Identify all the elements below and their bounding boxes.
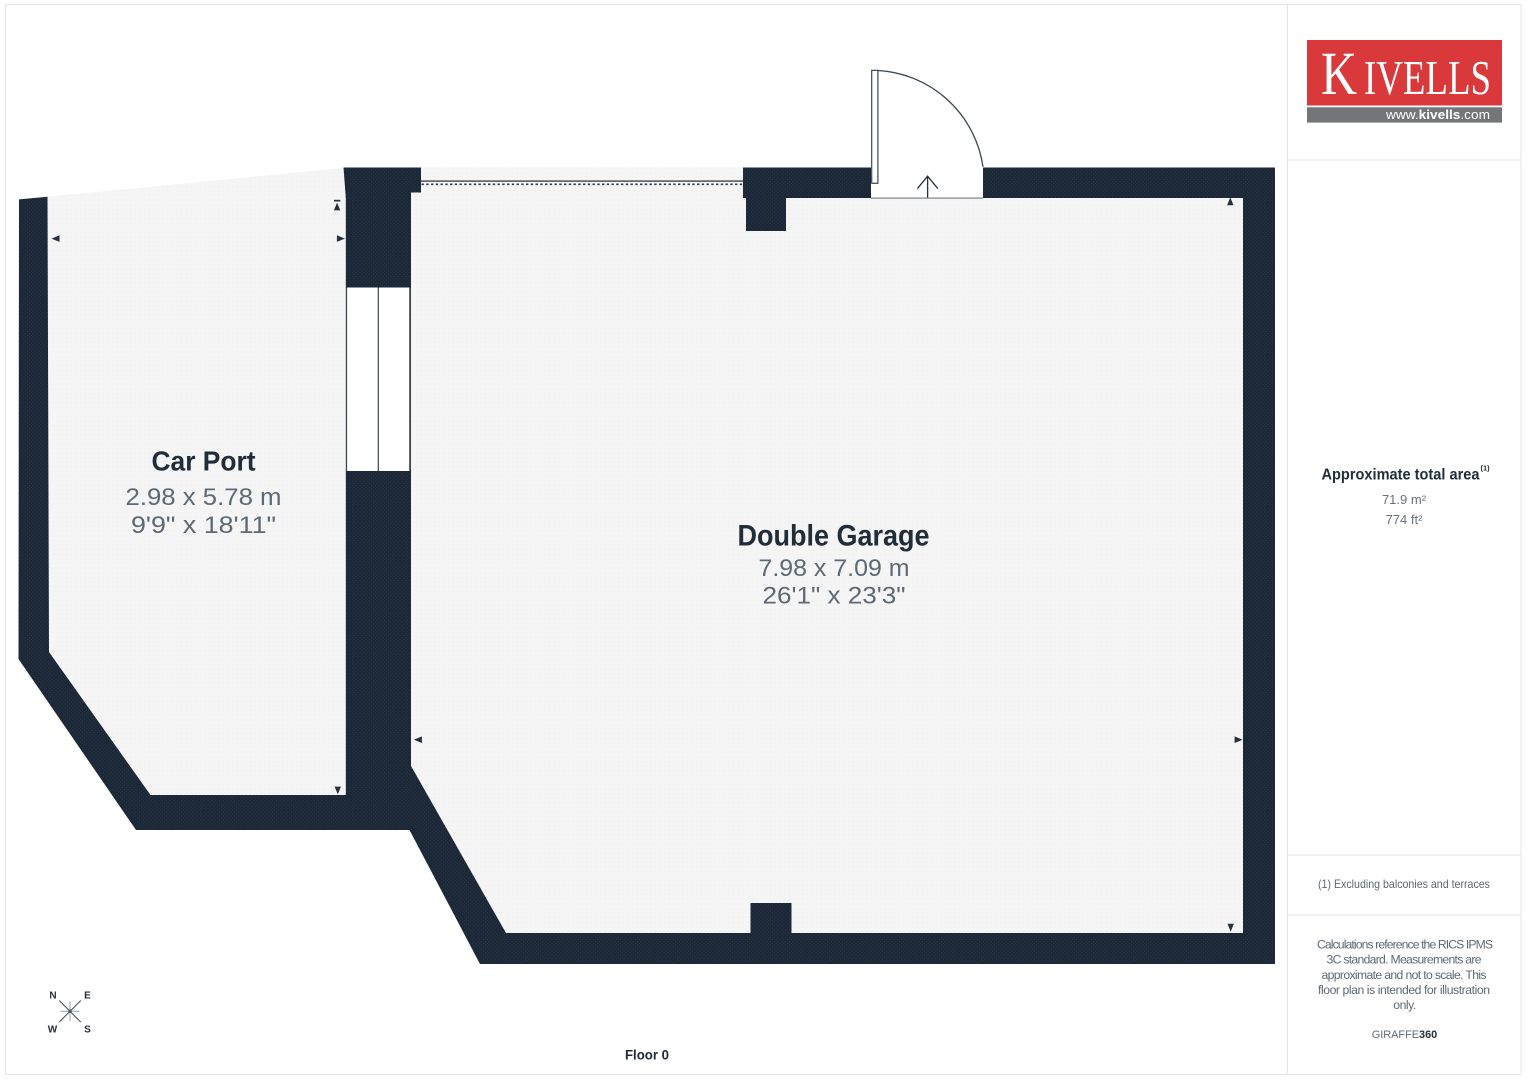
svg-text:E: E	[84, 991, 91, 1002]
svg-text:26'1" x 23'3": 26'1" x 23'3"	[763, 583, 906, 610]
svg-text:71.9 m²: 71.9 m²	[1382, 492, 1427, 507]
svg-text:3C standard. Measurements are: 3C standard. Measurements are	[1327, 953, 1482, 967]
svg-text:Calculations reference the RIC: Calculations reference the RICS IPMS	[1317, 938, 1493, 952]
svg-text:Double Garage: Double Garage	[738, 520, 930, 553]
svg-text:www.kivells.com: www.kivells.com	[1385, 107, 1490, 122]
svg-text:N: N	[49, 991, 56, 1002]
svg-text:S: S	[84, 1025, 91, 1036]
svg-text:Car Port: Car Port	[152, 446, 256, 477]
svg-text:7.98 x 7.09 m: 7.98 x 7.09 m	[759, 555, 910, 582]
svg-text:Floor 0: Floor 0	[625, 1047, 669, 1063]
svg-text:GIRAFFE360: GIRAFFE360	[1372, 1029, 1438, 1041]
svg-text:K: K	[1321, 41, 1357, 108]
svg-text:IVELLS: IVELLS	[1364, 52, 1491, 105]
svg-text:(1): (1)	[1481, 464, 1491, 473]
svg-text:774 ft²: 774 ft²	[1386, 512, 1424, 527]
svg-text:9'9" x 18'11": 9'9" x 18'11"	[131, 512, 276, 539]
svg-text:only.: only.	[1393, 998, 1416, 1012]
svg-text:approximate and not to scale.: approximate and not to scale. This	[1322, 968, 1487, 982]
svg-text:floor plan is intended for ill: floor plan is intended for illustration	[1318, 983, 1490, 997]
svg-text:(1) Excluding balconies and te: (1) Excluding balconies and terraces	[1318, 877, 1490, 891]
svg-text:W: W	[48, 1025, 58, 1036]
svg-text:2.98 x 5.78 m: 2.98 x 5.78 m	[126, 484, 282, 511]
svg-text:Approximate total area: Approximate total area	[1322, 467, 1480, 484]
